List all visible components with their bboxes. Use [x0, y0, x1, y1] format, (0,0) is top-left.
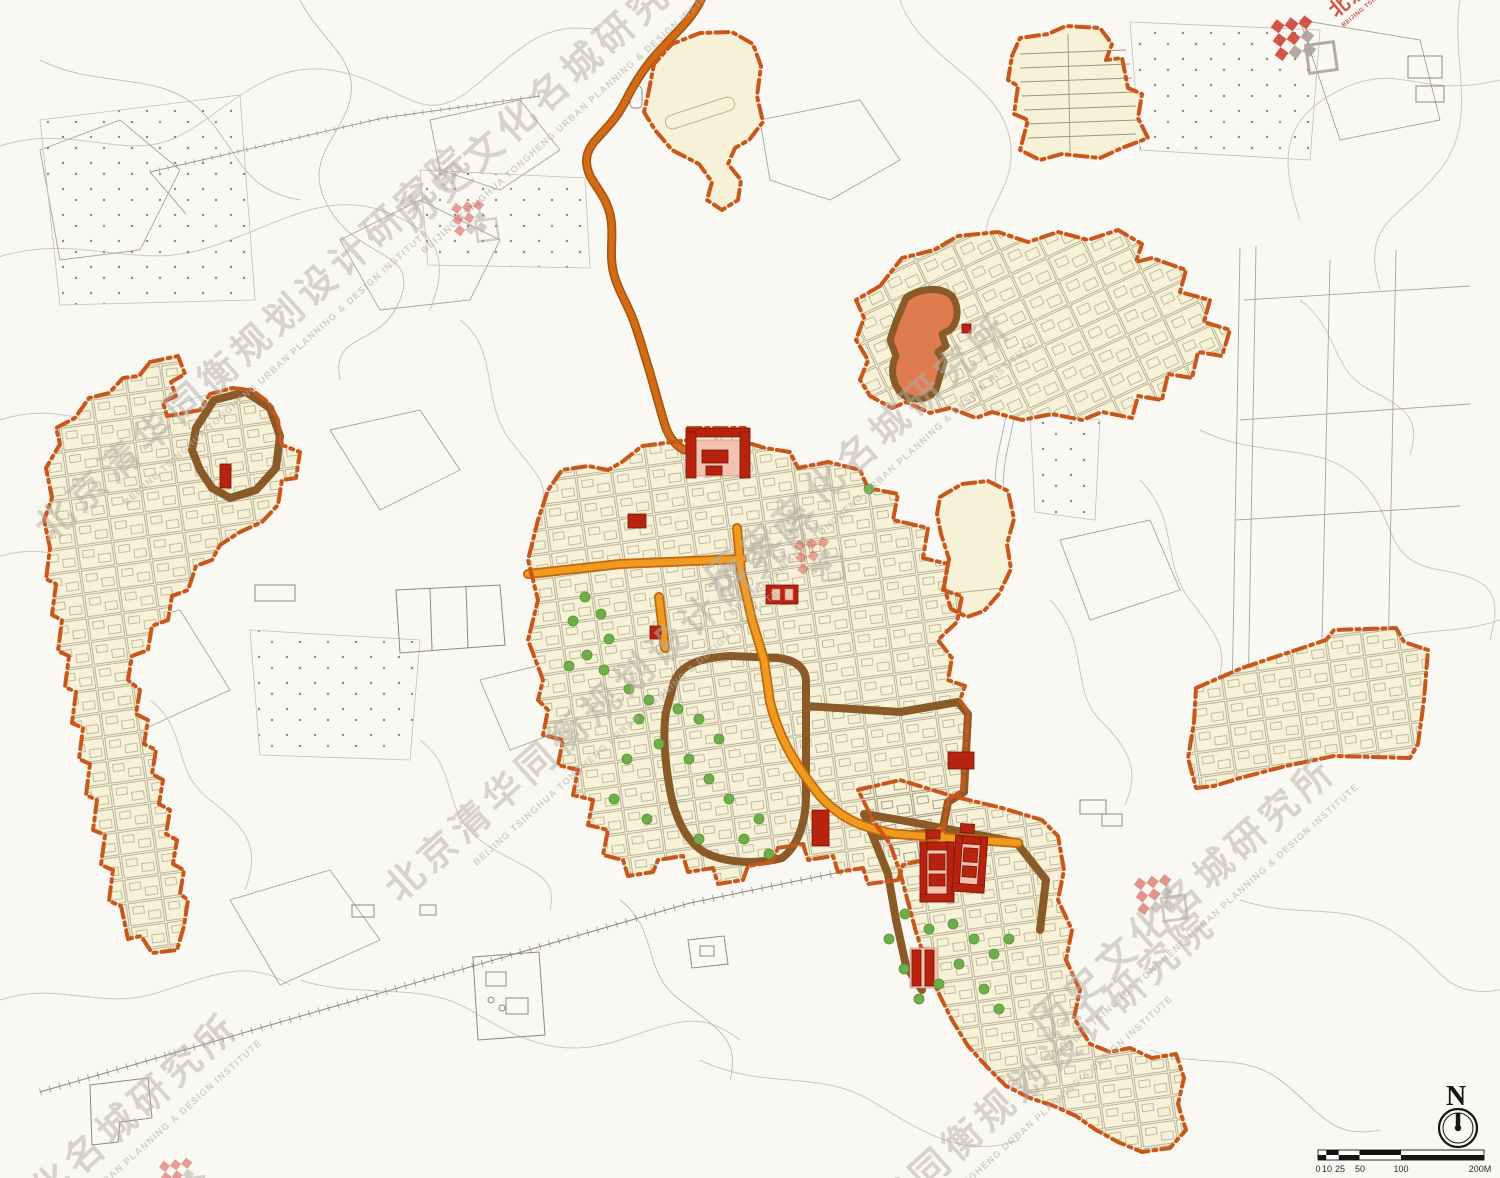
red-courtyard-south [910, 948, 938, 988]
scale-segment [1326, 1155, 1338, 1160]
north-label: N [1446, 1081, 1466, 1112]
tree-icon [989, 949, 999, 959]
planning-map-canvas: 历史文化名城研究所BEIJING TSINGHUA TONGHENG URBAN… [0, 0, 1500, 1178]
scale-segment [1360, 1155, 1402, 1160]
tree-icon [948, 919, 958, 929]
tree-icon [673, 704, 683, 714]
scale-label-25: 25 [1335, 1164, 1345, 1174]
tree-icon [900, 909, 910, 919]
tree-icon [934, 979, 944, 989]
tree-icon [754, 814, 764, 824]
tree-icon [914, 994, 924, 1004]
tree-icon [694, 834, 704, 844]
tree-icon [954, 959, 964, 969]
tree-icon [884, 934, 894, 944]
planning-map: 历史文化名城研究所BEIJING TSINGHUA TONGHENG URBAN… [0, 0, 1500, 1178]
scale-label-100: 100 [1393, 1164, 1408, 1174]
tree-icon [564, 661, 574, 671]
tree-icon [714, 734, 724, 744]
tree-icon [979, 984, 989, 994]
tree-icon [622, 754, 632, 764]
tree-icon [568, 616, 578, 626]
scale-label-50: 50 [1355, 1164, 1365, 1174]
scale-segment [1339, 1150, 1360, 1155]
tree-icon [580, 592, 590, 602]
scale-segment [1360, 1150, 1402, 1155]
scale-segment [1318, 1150, 1326, 1155]
tree-icon [609, 794, 619, 804]
tree-icon [969, 934, 979, 944]
scale-segment [1318, 1155, 1326, 1160]
tree-icon [739, 834, 749, 844]
tree-icon [654, 739, 664, 749]
tree-icon [694, 714, 704, 724]
tree-icon [924, 924, 934, 934]
scale-segment [1326, 1150, 1338, 1155]
tree-icon [899, 964, 909, 974]
tree-icon [684, 754, 694, 764]
gate-complex [686, 428, 750, 478]
tree-icon [582, 650, 592, 660]
tree-icon [724, 794, 734, 804]
left-village-red-building [220, 464, 231, 488]
scale-label-10: 10 [1322, 1164, 1332, 1174]
scale-label-200: 200M [1469, 1164, 1492, 1174]
scale-segment [1339, 1155, 1360, 1160]
scale-segment [1401, 1150, 1484, 1155]
tree-icon [596, 609, 606, 619]
tree-icon [764, 849, 774, 859]
scale-segment [1401, 1155, 1484, 1160]
tree-icon [704, 774, 714, 784]
tree-icon [1004, 934, 1014, 944]
scale-label-0: 0 [1315, 1164, 1320, 1174]
tree-icon [642, 814, 652, 824]
tree-icon [604, 634, 614, 644]
tree-icon [994, 1004, 1004, 1014]
